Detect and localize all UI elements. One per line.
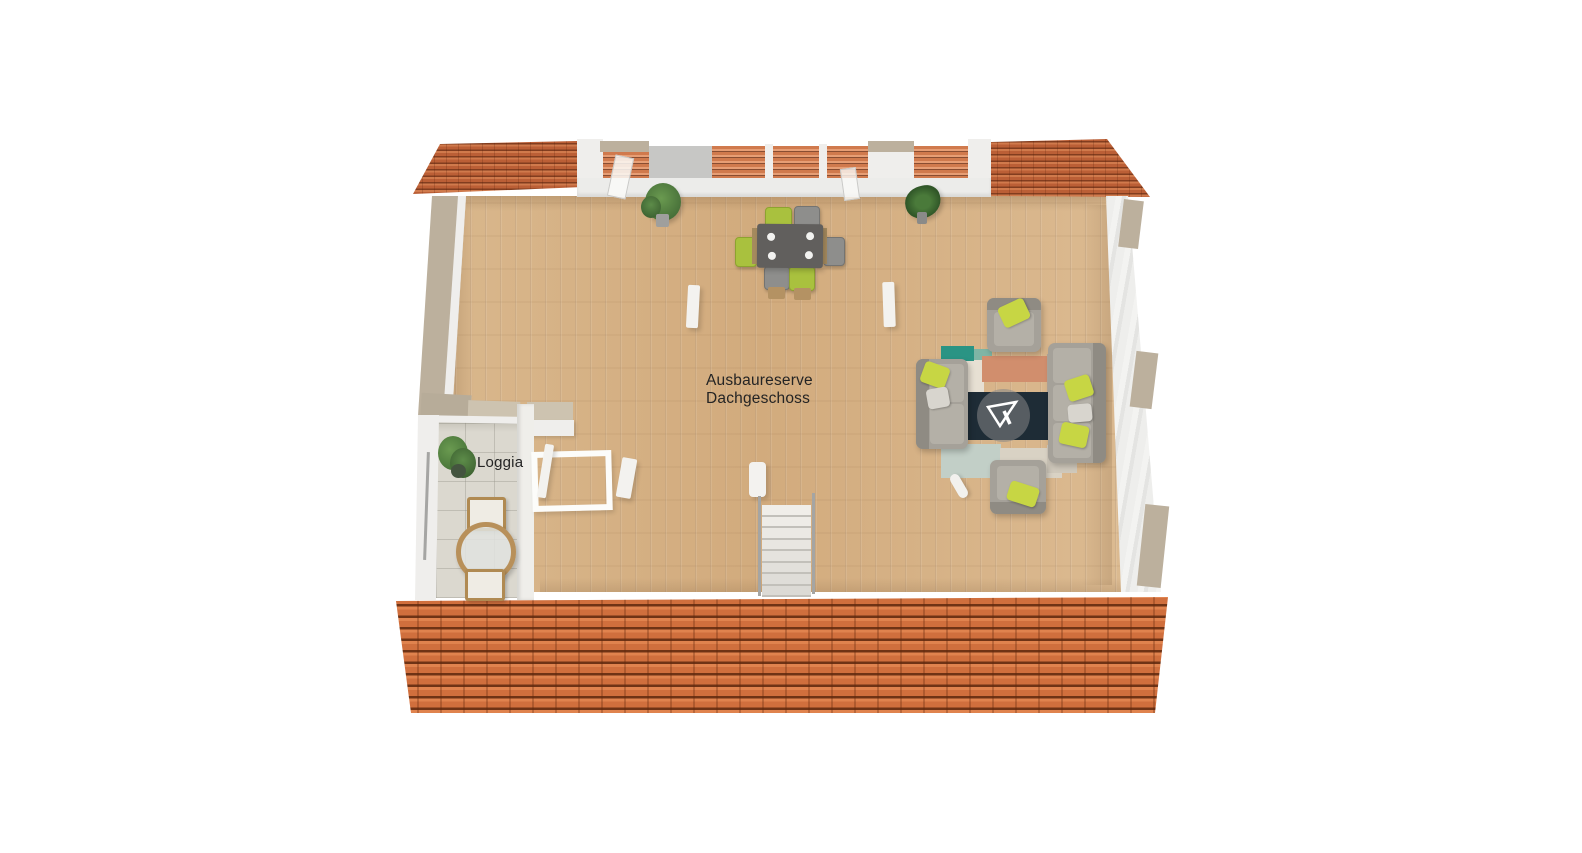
stair-rail-right [812, 493, 815, 594]
top-window-mullion-2 [819, 144, 827, 178]
loggia-chair-bottom [465, 569, 505, 601]
stair-rail-left [758, 496, 761, 596]
floor-shadow-bottom [540, 578, 1130, 592]
top-window-mullion-1 [765, 144, 773, 178]
loggia-wall-right [517, 404, 534, 600]
stair-step [762, 574, 811, 586]
loggia-plant-pot [451, 464, 466, 478]
loggia-corner-wall [529, 420, 574, 436]
stair-step [762, 517, 811, 529]
dining-table [757, 224, 823, 269]
plate [767, 233, 775, 241]
stair-newel-post [749, 462, 766, 497]
roof-top-right [985, 136, 1151, 198]
wall-stub-right [882, 282, 896, 327]
stair-step [762, 528, 811, 540]
main-room-label-line2: Dachgeschoss [706, 390, 846, 408]
main-room-label-line1: Ausbaureserve [706, 372, 846, 390]
top-wall-pier-mid [868, 152, 914, 178]
main-room-label: Ausbaureserve Dachgeschoss [706, 372, 846, 408]
top-wall-pier-right [968, 139, 991, 180]
armchair-bottom-back [990, 502, 1046, 514]
top-window-3 [914, 146, 968, 178]
staircase [762, 505, 811, 595]
rug-logo-icon [983, 398, 1023, 432]
dining-chair-legs-1 [768, 287, 785, 299]
sofa-3-seat-back [1093, 343, 1106, 463]
potted-plant-2-pot [917, 212, 927, 224]
stair-step [762, 563, 811, 575]
right-wall-cap-top [1118, 199, 1144, 249]
plate [806, 232, 814, 240]
loggia-label: Loggia [477, 454, 523, 472]
dining-chair-legs-2 [794, 288, 811, 300]
rug-logo-circle [977, 389, 1030, 442]
stair-step [762, 505, 811, 517]
roof-top-left [410, 138, 586, 196]
top-wall-gray-segment [649, 146, 712, 178]
stair-step [762, 586, 811, 598]
potted-plant-1-pot [656, 214, 669, 227]
stair-step [762, 551, 811, 563]
roof-bottom [394, 595, 1170, 715]
sofa-2-seat-cushion-2 [930, 404, 964, 444]
plate [805, 251, 813, 259]
wall-stub-left [686, 285, 700, 329]
sofa-2-seat-pillow-white [925, 386, 950, 410]
top-wall-cap-2 [868, 141, 914, 152]
stair-step [762, 540, 811, 552]
top-wall-cap-1 [600, 141, 649, 152]
sofa-3-seat-pillow-white [1067, 403, 1092, 423]
rug-patch-salmon [982, 356, 1047, 382]
plate [768, 252, 776, 260]
floorplan-canvas: Ausbaureserve Dachgeschoss Loggia [0, 0, 1582, 853]
